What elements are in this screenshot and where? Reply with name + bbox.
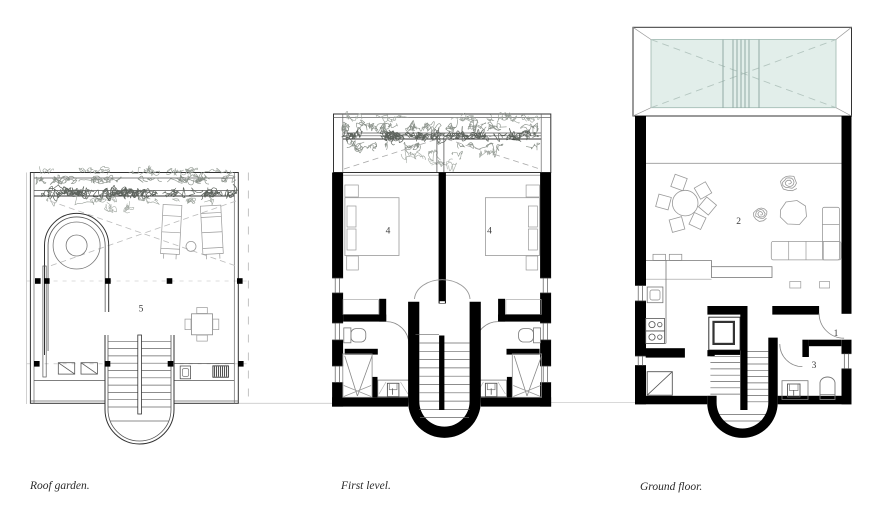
svg-text:4: 4 xyxy=(386,227,391,237)
svg-text:Roof garden.: Roof garden. xyxy=(29,480,90,492)
svg-text:3: 3 xyxy=(812,361,817,371)
svg-text:Ground floor.: Ground floor. xyxy=(640,481,702,493)
svg-text:First level.: First level. xyxy=(340,480,391,492)
svg-text:1: 1 xyxy=(834,329,839,339)
svg-text:2: 2 xyxy=(736,217,741,227)
svg-text:5: 5 xyxy=(139,305,144,315)
svg-text:4: 4 xyxy=(487,227,492,237)
